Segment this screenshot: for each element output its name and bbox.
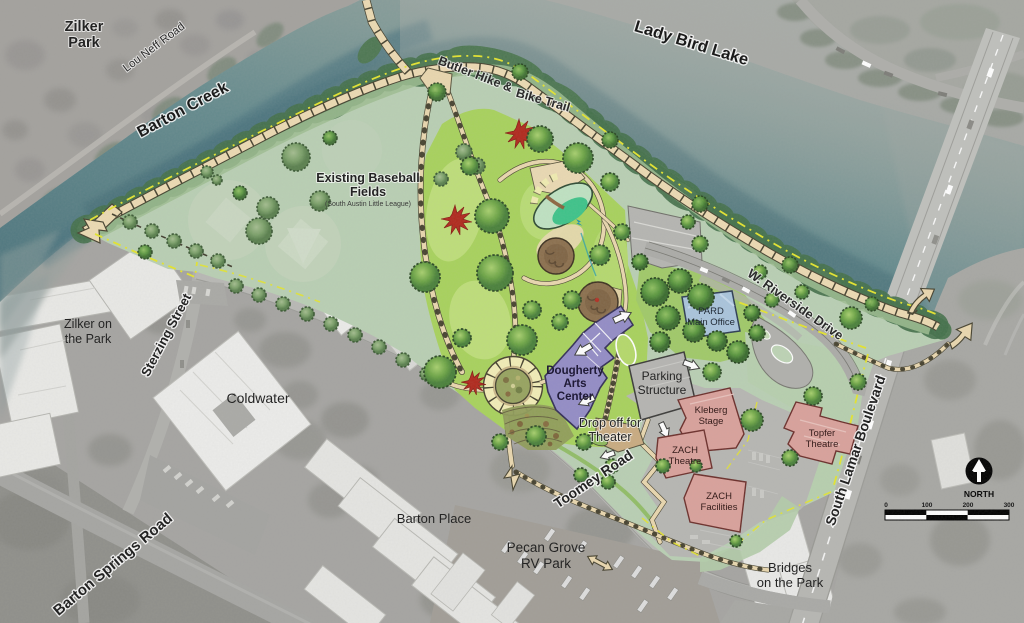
svg-text:Facilities: Facilities: [701, 502, 738, 513]
svg-text:Stage: Stage: [699, 416, 724, 427]
svg-text:Drop off for: Drop off for: [579, 416, 641, 430]
svg-text:Park: Park: [68, 35, 100, 51]
svg-text:Theatre: Theatre: [806, 439, 839, 450]
svg-text:Barton Place: Barton Place: [397, 511, 471, 526]
svg-text:Arts: Arts: [563, 378, 586, 390]
svg-text:200: 200: [963, 502, 974, 509]
svg-text:Coldwater: Coldwater: [226, 390, 289, 406]
svg-text:NORTH: NORTH: [964, 489, 994, 499]
svg-text:RV Park: RV Park: [521, 556, 571, 571]
svg-text:100: 100: [922, 502, 933, 509]
svg-text:(South Austin Little League): (South Austin Little League): [325, 201, 411, 208]
svg-text:0: 0: [884, 502, 888, 509]
svg-text:Kleberg: Kleberg: [695, 405, 728, 416]
svg-text:the Park: the Park: [65, 332, 112, 346]
svg-text:on the Park: on the Park: [757, 575, 824, 590]
svg-text:Theatre: Theatre: [669, 456, 702, 467]
svg-text:Parking: Parking: [642, 369, 683, 383]
svg-text:Zilker on: Zilker on: [64, 317, 112, 331]
svg-text:PARD: PARD: [698, 306, 724, 317]
svg-text:Fields: Fields: [350, 185, 386, 199]
svg-text:Main Office: Main Office: [687, 317, 735, 328]
svg-text:Center: Center: [557, 391, 594, 403]
svg-text:Dougherty: Dougherty: [546, 365, 604, 377]
svg-text:Topfer: Topfer: [809, 428, 835, 439]
svg-text:Structure: Structure: [638, 383, 687, 397]
svg-text:Theater: Theater: [588, 430, 631, 444]
svg-text:ZACH: ZACH: [672, 445, 698, 456]
svg-text:Pecan Grove: Pecan Grove: [507, 540, 586, 555]
svg-text:Existing Baseball: Existing Baseball: [316, 171, 420, 185]
svg-text:300: 300: [1004, 502, 1015, 509]
svg-text:Zilker: Zilker: [65, 19, 104, 35]
svg-text:Bridges: Bridges: [768, 560, 813, 575]
svg-text:ZACH: ZACH: [706, 491, 732, 502]
